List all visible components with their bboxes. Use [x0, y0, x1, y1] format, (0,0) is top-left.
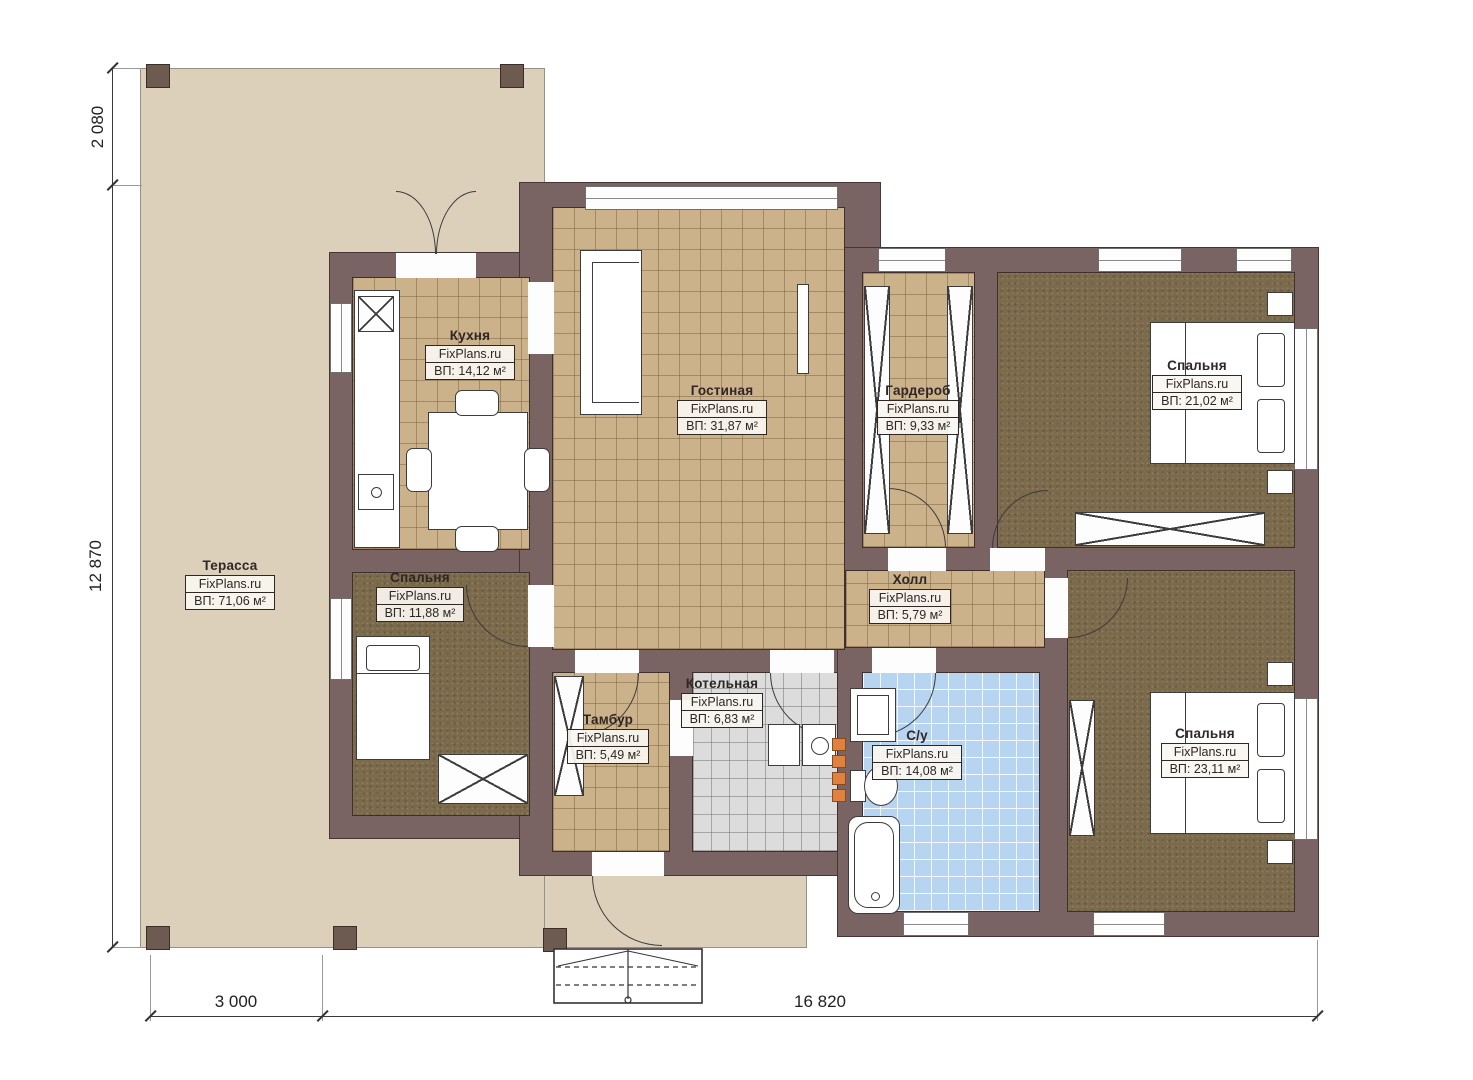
nightstand [1267, 840, 1293, 864]
chair [455, 526, 499, 552]
room-name: Терасса [165, 558, 295, 573]
dim-extension [112, 185, 142, 186]
blanket-edge [357, 637, 429, 674]
nightstand [1267, 662, 1293, 686]
vestibule-door-gap [575, 650, 639, 673]
watermark: FixPlans.ru [873, 746, 961, 763]
washer-door [811, 737, 829, 755]
dim-line-vertical [112, 68, 113, 948]
watermark: FixPlans.ru [678, 401, 766, 418]
dim-extension [1317, 940, 1318, 1021]
bedroom-br-window [1093, 912, 1165, 936]
room-name: Спальня [1132, 358, 1262, 373]
room-label-bedroom-left: Спальня FixPlans.ru ВП: 11,88 м² [355, 570, 485, 622]
bedroom-tr-window2 [1236, 248, 1292, 272]
sofa-seat [592, 262, 639, 403]
towel-radiator-segment [832, 772, 846, 785]
room-label-box: FixPlans.ru ВП: 21,02 м² [1152, 375, 1242, 410]
room-label-bedroom-br: Спальня FixPlans.ru ВП: 23,11 м² [1140, 726, 1270, 778]
nightstand [1267, 292, 1293, 316]
room-label-box: FixPlans.ru ВП: 71,06 м² [185, 575, 275, 610]
floor-plan: Терасса FixPlans.ru ВП: 71,06 м² Кухня F… [0, 0, 1473, 1080]
room-area: ВП: 71,06 м² [186, 593, 274, 609]
bedroom-br-door-gap [1045, 578, 1068, 638]
watermark: FixPlans.ru [426, 346, 514, 363]
chair [406, 448, 432, 492]
room-label-bathroom: С/у FixPlans.ru ВП: 14,08 м² [852, 728, 982, 780]
boiler-unit [768, 724, 800, 766]
dim-extension [112, 947, 142, 948]
dim-house-width: 16 820 [775, 992, 865, 1012]
watermark: FixPlans.ru [1153, 376, 1241, 393]
bedroom-tr-window [1098, 248, 1182, 272]
room-label-box: FixPlans.ru ВП: 31,87 м² [677, 400, 767, 435]
entrance-stairs [553, 948, 703, 1006]
room-label-box: FixPlans.ru ВП: 6,83 м² [681, 693, 764, 728]
kitchen-hob [358, 296, 394, 332]
towel-radiator-segment [832, 755, 846, 768]
room-label-box: FixPlans.ru ВП: 9,33 м² [877, 400, 960, 435]
dim-line-horizontal [150, 1016, 1318, 1017]
sofa [580, 250, 642, 415]
watermark: FixPlans.ru [568, 730, 649, 747]
room-label-box: FixPlans.ru ВП: 14,08 м² [872, 745, 962, 780]
terrace-door-gap [396, 253, 476, 278]
bathroom-window [903, 912, 969, 936]
living-window [585, 186, 838, 210]
towel-radiator-segment [832, 738, 846, 751]
terrace-post [146, 64, 170, 88]
kitchen-window [330, 303, 352, 373]
terrace-post [500, 64, 524, 88]
bed [356, 636, 430, 760]
bedroom-br-side-window [1294, 698, 1318, 840]
washing-machine [802, 724, 836, 766]
room-name: С/у [852, 728, 982, 743]
room-label-terrace: Терасса FixPlans.ru ВП: 71,06 м² [165, 558, 295, 610]
room-area: ВП: 5,49 м² [568, 747, 649, 763]
dim-house-height: 12 870 [86, 521, 106, 611]
room-area: ВП: 31,87 м² [678, 418, 766, 434]
room-name: Спальня [355, 570, 485, 585]
watermark: FixPlans.ru [878, 401, 959, 418]
room-area: ВП: 9,33 м² [878, 418, 959, 434]
dining-table [428, 412, 528, 530]
sink-drain [371, 487, 382, 498]
watermark: FixPlans.ru [1162, 744, 1249, 761]
towel-radiator-segment [832, 789, 846, 802]
nightstand [1267, 470, 1293, 494]
room-area: ВП: 14,12 м² [426, 363, 514, 379]
bedroom-tr-door-gap [990, 548, 1045, 571]
kitchen-sink [358, 474, 394, 510]
bathtub [848, 816, 900, 914]
room-area: ВП: 23,11 м² [1162, 761, 1249, 777]
bedroom-tr-side-window [1294, 328, 1318, 470]
room-name: Тамбур [543, 712, 673, 727]
room-name: Кухня [405, 328, 535, 343]
watermark: FixPlans.ru [870, 590, 951, 607]
room-label-box: FixPlans.ru ВП: 11,88 м² [376, 587, 465, 622]
bedroom-left-window [330, 598, 352, 680]
bedroom-left-door-gap [528, 585, 554, 647]
room-area: ВП: 5,79 м² [870, 607, 951, 623]
room-label-bedroom-tr: Спальня FixPlans.ru ВП: 21,02 м² [1132, 358, 1262, 410]
bathroom-door-gap [872, 648, 936, 673]
room-label-vestibule: Тамбур FixPlans.ru ВП: 5,49 м² [543, 712, 673, 764]
entry-door-gap [592, 852, 664, 876]
watermark: FixPlans.ru [186, 576, 274, 593]
wardrobe-door-gap [888, 548, 946, 571]
room-name: Котельная [657, 676, 787, 691]
bedroom-tr-closet [1075, 512, 1265, 546]
room-name: Гостиная [657, 383, 787, 398]
room-label-box: FixPlans.ru ВП: 5,79 м² [869, 589, 952, 624]
dim-terrace-width: 3 000 [191, 992, 281, 1012]
watermark: FixPlans.ru [682, 694, 763, 711]
tv [797, 284, 809, 374]
room-name: Спальня [1140, 726, 1270, 741]
room-name: Гардероб [853, 383, 983, 398]
bathtub-drain [871, 892, 880, 901]
room-label-kitchen: Кухня FixPlans.ru ВП: 14,12 м² [405, 328, 535, 380]
chair [455, 390, 499, 416]
room-area: ВП: 6,83 м² [682, 711, 763, 727]
terrace-post [146, 926, 170, 950]
room-label-wardrobe: Гардероб FixPlans.ru ВП: 9,33 м² [853, 383, 983, 435]
dim-extension [150, 955, 151, 1021]
room-label-hall: Холл FixPlans.ru ВП: 5,79 м² [845, 572, 975, 624]
room-label-living: Гостиная FixPlans.ru ВП: 31,87 м² [657, 383, 787, 435]
wardrobe-window [878, 248, 946, 272]
room-area: ВП: 11,88 м² [377, 605, 464, 621]
room-label-box: FixPlans.ru ВП: 23,11 м² [1161, 743, 1250, 778]
dim-terrace-depth: 2 080 [88, 82, 108, 172]
room-area: ВП: 14,08 м² [873, 763, 961, 779]
room-area: ВП: 21,02 м² [1153, 393, 1241, 409]
room-name: Холл [845, 572, 975, 587]
room-label-boiler: Котельная FixPlans.ru ВП: 6,83 м² [657, 676, 787, 728]
room-label-box: FixPlans.ru ВП: 14,12 м² [425, 345, 515, 380]
bedroom-left-closet [438, 754, 528, 804]
dim-extension [322, 955, 323, 1021]
terrace-post [333, 926, 357, 950]
watermark: FixPlans.ru [377, 588, 464, 605]
chair [524, 448, 550, 492]
room-label-box: FixPlans.ru ВП: 5,49 м² [567, 729, 650, 764]
bedroom-br-closet [1069, 700, 1095, 836]
boiler-door-gap [770, 650, 834, 673]
dim-extension [112, 68, 142, 69]
